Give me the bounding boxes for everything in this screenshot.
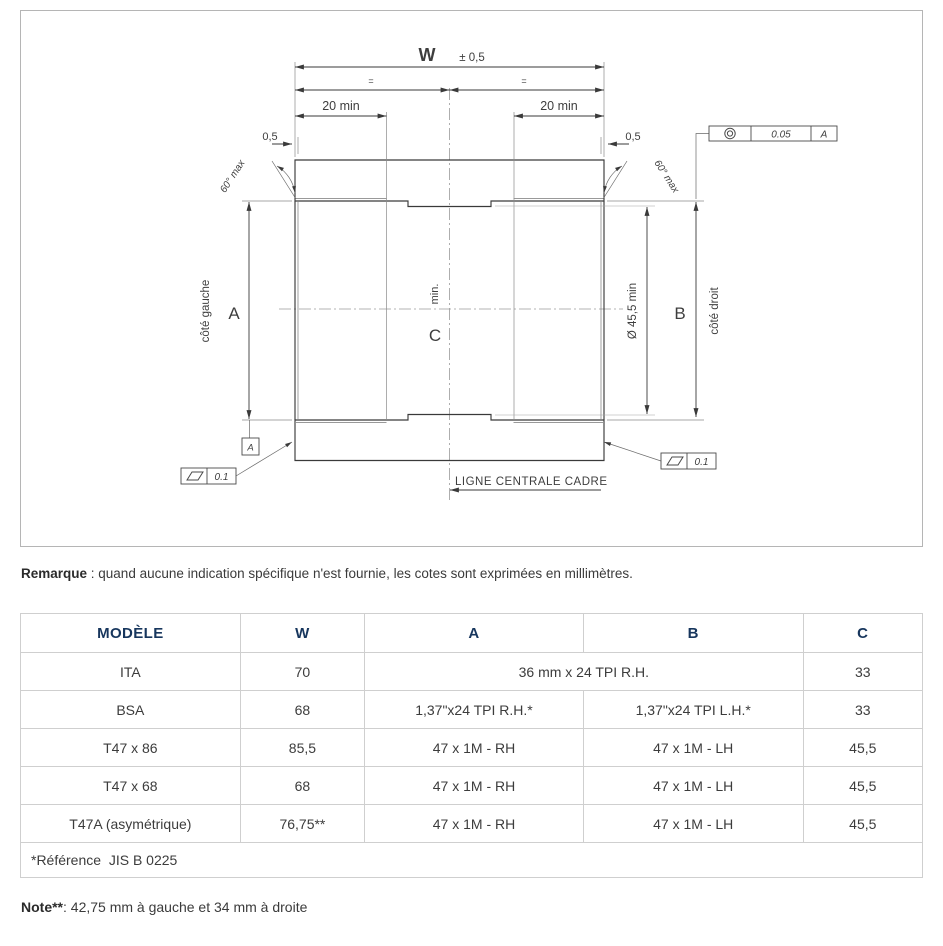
side-right-label: côté droit — [709, 287, 721, 335]
cell-model: T47A (asymétrique) — [21, 805, 241, 843]
table-row: ITA 70 36 mm x 24 TPI R.H. 33 — [21, 653, 923, 691]
cell-a: 47 x 1M - RH — [365, 767, 584, 805]
header-a: A — [365, 614, 584, 653]
datum-a-symbol: A — [242, 420, 259, 455]
dim-w-label: W — [419, 45, 436, 65]
chamfer-angle-left: 60° max — [218, 157, 248, 195]
table-footer-row: *Référence JIS B 0225 — [21, 843, 923, 878]
flatness-value-right: 0.1 — [695, 457, 709, 468]
table-row: T47 x 68 68 47 x 1M - RH 47 x 1M - LH 45… — [21, 767, 923, 805]
table-footer-reference: *Référence JIS B 0225 — [21, 843, 923, 878]
datum-a-label: A — [246, 443, 253, 454]
bottom-bracket-shell-drawing: A 0.1 0.1 — [21, 11, 922, 546]
cell-b: 47 x 1M - LH — [583, 767, 803, 805]
flatness-value-left: 0.1 — [215, 472, 229, 483]
note-text: Note**: 42,75 mm à gauche et 34 mm à dro… — [21, 899, 923, 915]
cell-w: 70 — [240, 653, 364, 691]
frame-centerline-label: LIGNE CENTRALE CADRE — [455, 476, 608, 488]
technical-drawing-frame: A 0.1 0.1 — [20, 10, 923, 547]
cell-c: 45,5 — [803, 729, 922, 767]
cell-a: 1,37"x24 TPI R.H.* — [365, 691, 584, 729]
note-body: : 42,75 mm à gauche et 34 mm à droite — [63, 899, 307, 915]
dim-w-tolerance: ± 0,5 — [459, 52, 485, 64]
thread-length-right: 20 min — [540, 99, 578, 113]
table-row: BSA 68 1,37"x24 TPI R.H.* 1,37"x24 TPI L… — [21, 691, 923, 729]
cell-c: 33 — [803, 691, 922, 729]
dim-a-label: A — [228, 304, 240, 323]
concentricity-datum: A — [820, 130, 828, 141]
chamfer-right: 0,5 — [625, 131, 640, 143]
cell-a: 47 x 1M - RH — [365, 729, 584, 767]
cell-w: 76,75** — [240, 805, 364, 843]
remark-body: : quand aucune indication spécifique n'e… — [87, 566, 633, 581]
cell-c: 33 — [803, 653, 922, 691]
spec-table: MODÈLE W A B C ITA 70 36 mm x 24 TPI R.H… — [20, 613, 923, 878]
cell-b: 47 x 1M - LH — [583, 729, 803, 767]
equal-mark-left: = — [368, 76, 373, 86]
table-header-row: MODÈLE W A B C — [21, 614, 923, 653]
remark-label: Remarque — [21, 566, 87, 581]
thread-length-left: 20 min — [322, 99, 360, 113]
chamfer-angle-right: 60° max — [651, 158, 681, 196]
cell-ab-merged: 36 mm x 24 TPI R.H. — [365, 653, 803, 691]
cell-w: 68 — [240, 767, 364, 805]
cell-c: 45,5 — [803, 767, 922, 805]
cell-c: 45,5 — [803, 805, 922, 843]
cell-b: 47 x 1M - LH — [583, 805, 803, 843]
dim-c-label: C — [429, 326, 441, 345]
table-row: T47 x 86 85,5 47 x 1M - RH 47 x 1M - LH … — [21, 729, 923, 767]
flatness-frame-left: 0.1 — [181, 442, 292, 484]
center-lines — [279, 88, 623, 503]
cell-a: 47 x 1M - RH — [365, 805, 584, 843]
dim-b-label: B — [674, 304, 685, 323]
header-c: C — [803, 614, 922, 653]
chamfer-left: 0,5 — [262, 131, 277, 143]
side-left-label: côté gauche — [200, 280, 212, 343]
cell-w: 68 — [240, 691, 364, 729]
header-modele: MODÈLE — [21, 614, 241, 653]
note-label: Note** — [21, 899, 63, 915]
cell-model: T47 x 86 — [21, 729, 241, 767]
cell-model: ITA — [21, 653, 241, 691]
header-b: B — [583, 614, 803, 653]
bore-diameter-label: Ø 45,5 min — [627, 283, 639, 339]
dim-c-min-label: min. — [429, 284, 441, 305]
table-row: T47A (asymétrique) 76,75** 47 x 1M - RH … — [21, 805, 923, 843]
cell-model: T47 x 68 — [21, 767, 241, 805]
cell-w: 85,5 — [240, 729, 364, 767]
page: A 0.1 0.1 — [0, 0, 943, 915]
concentricity-value: 0.05 — [771, 130, 791, 141]
dimension-labels: W ± 0,5 = = 20 min 20 min 0,5 0,5 60° ma… — [200, 45, 721, 488]
equal-mark-right: = — [521, 76, 526, 86]
cell-model: BSA — [21, 691, 241, 729]
header-w: W — [240, 614, 364, 653]
concentricity-frame: 0.05 A — [696, 126, 837, 199]
flatness-frame-right: 0.1 — [604, 442, 716, 469]
cell-b: 1,37"x24 TPI L.H.* — [583, 691, 803, 729]
remark-text: Remarque : quand aucune indication spéci… — [21, 566, 923, 581]
